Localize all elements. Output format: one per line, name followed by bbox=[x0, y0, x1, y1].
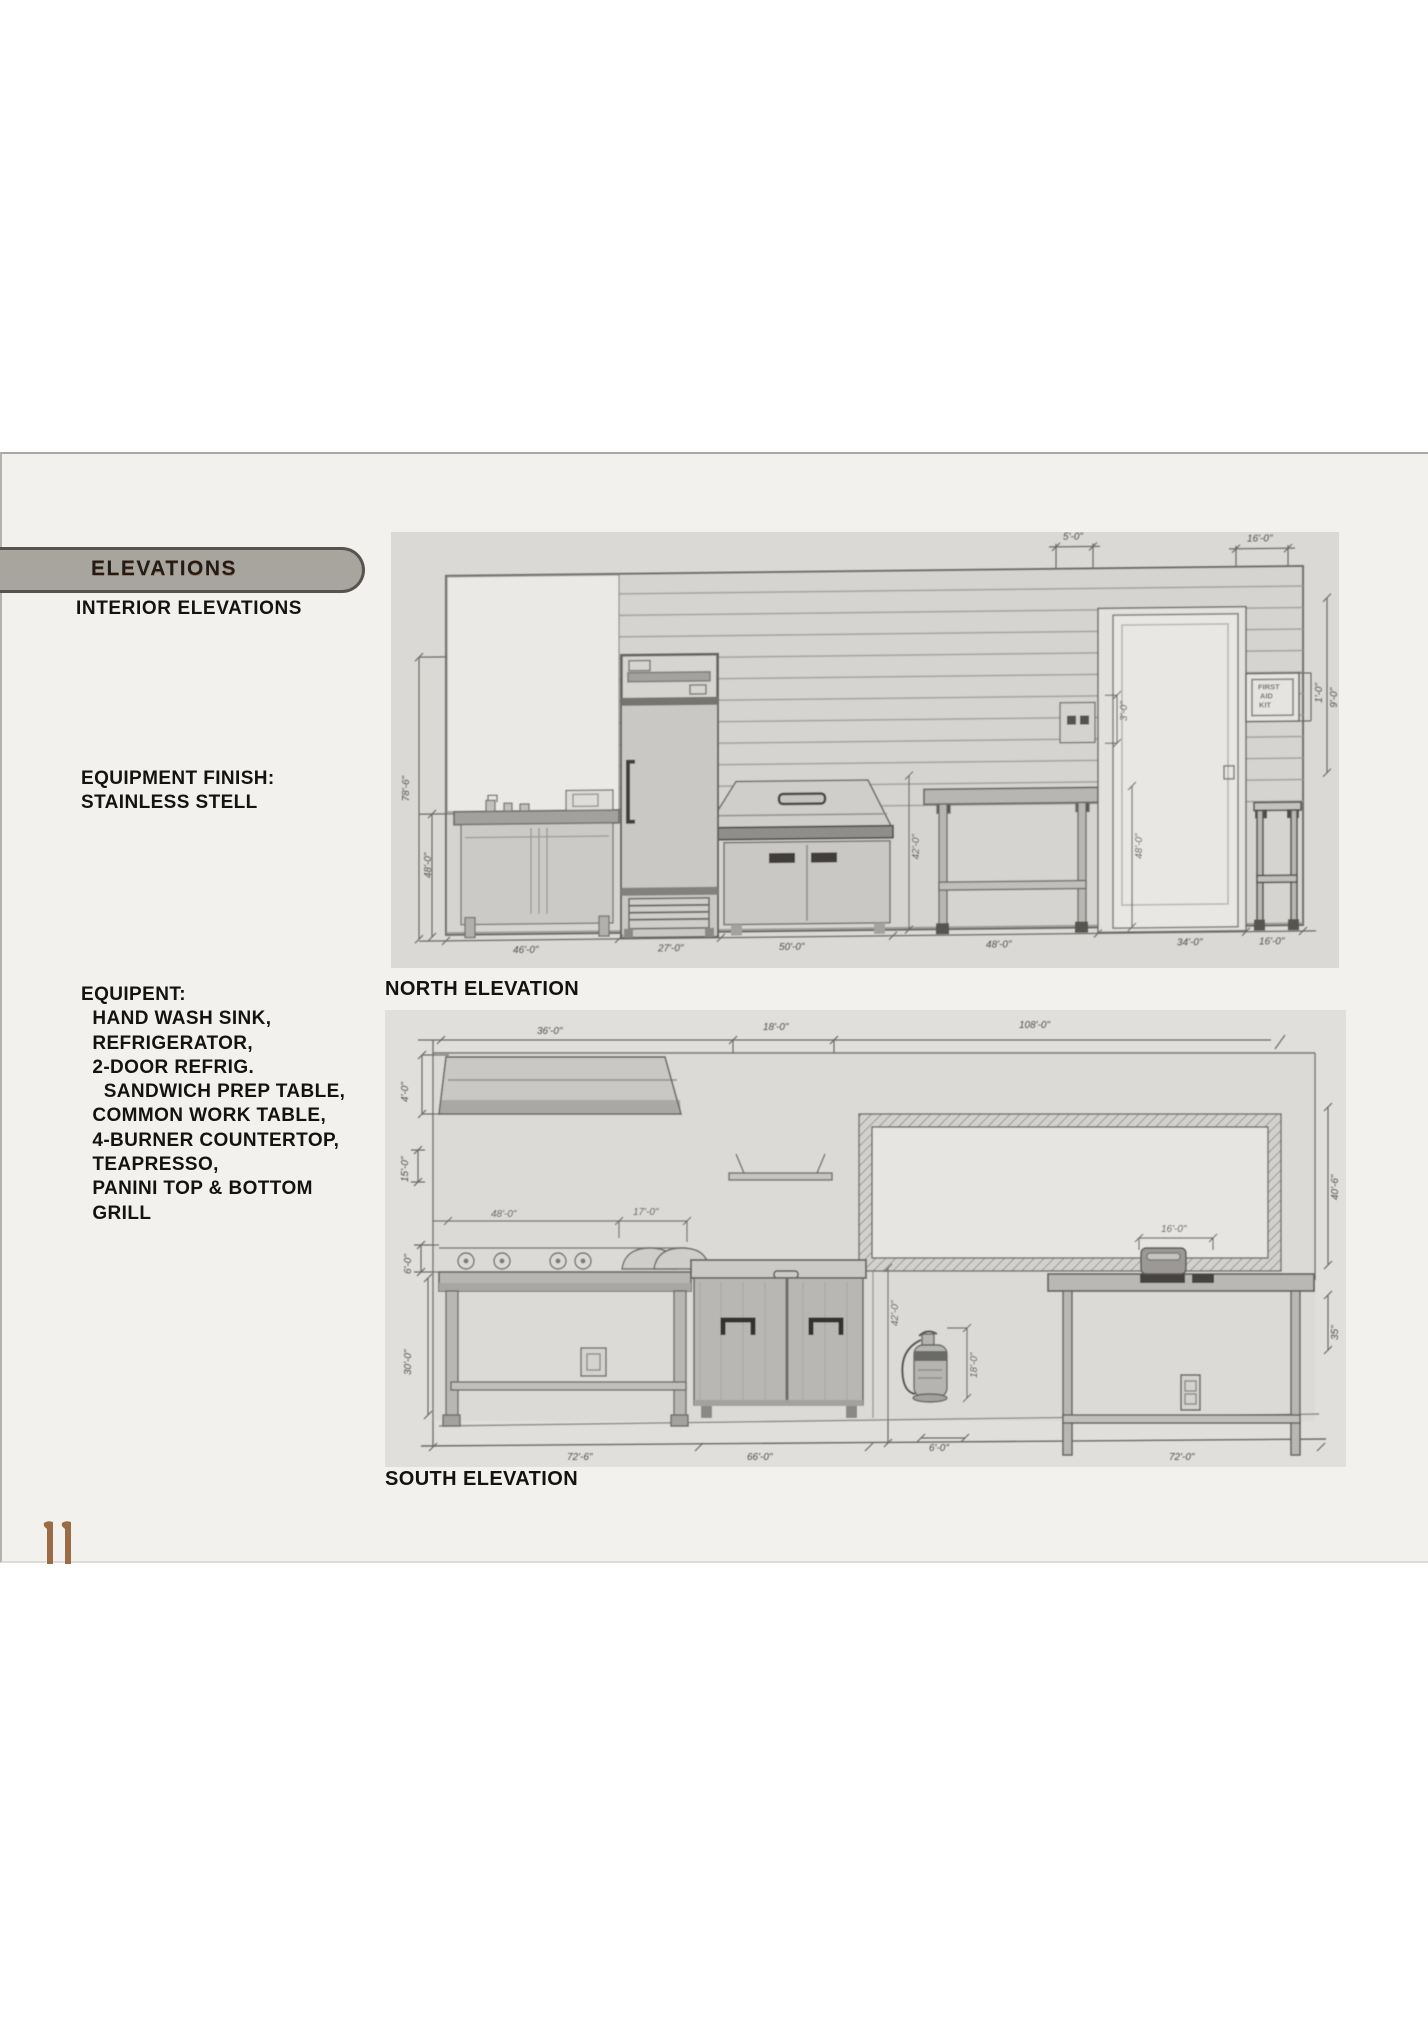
svg-text:72'-0": 72'-0" bbox=[1169, 1452, 1195, 1463]
svg-text:16'-0": 16'-0" bbox=[1161, 1224, 1187, 1235]
svg-text:15'-0": 15'-0" bbox=[400, 1156, 411, 1182]
svg-text:27'-0": 27'-0" bbox=[657, 943, 684, 954]
svg-text:FIRST: FIRST bbox=[1258, 682, 1280, 691]
svg-text:78'-6": 78'-6" bbox=[401, 775, 412, 801]
svg-text:5'-0": 5'-0" bbox=[1063, 532, 1083, 543]
svg-text:36'-0": 36'-0" bbox=[537, 1026, 563, 1037]
svg-text:46'-0": 46'-0" bbox=[513, 945, 539, 956]
svg-text:17'-0": 17'-0" bbox=[633, 1207, 659, 1218]
svg-text:34'-0": 34'-0" bbox=[1177, 937, 1203, 948]
svg-text:48'-0": 48'-0" bbox=[986, 939, 1012, 950]
svg-text:42'-0": 42'-0" bbox=[911, 833, 922, 859]
svg-text:30'-0": 30'-0" bbox=[403, 1349, 414, 1375]
svg-text:AID: AID bbox=[1260, 691, 1273, 700]
svg-text:18'-0": 18'-0" bbox=[969, 1352, 980, 1378]
svg-text:3'-0": 3'-0" bbox=[1119, 701, 1130, 721]
svg-text:42'-0": 42'-0" bbox=[890, 1300, 901, 1326]
svg-text:1'-0": 1'-0" bbox=[1314, 682, 1325, 702]
svg-text:9'-0": 9'-0" bbox=[1329, 687, 1339, 707]
svg-text:6'-0": 6'-0" bbox=[929, 1443, 949, 1454]
svg-text:16'-0": 16'-0" bbox=[1247, 533, 1273, 544]
svg-text:35": 35" bbox=[1330, 1325, 1341, 1340]
svg-text:18'-0": 18'-0" bbox=[763, 1022, 789, 1033]
svg-text:16'-0": 16'-0" bbox=[1259, 936, 1285, 947]
svg-text:40'-6": 40'-6" bbox=[1330, 1174, 1341, 1200]
svg-text:66'-0": 66'-0" bbox=[747, 1452, 773, 1463]
svg-text:50'-0": 50'-0" bbox=[779, 942, 805, 953]
svg-text:48'-0": 48'-0" bbox=[1134, 833, 1145, 859]
svg-text:108'-0": 108'-0" bbox=[1019, 1020, 1050, 1031]
svg-text:KIT: KIT bbox=[1259, 700, 1271, 709]
svg-text:72'-6": 72'-6" bbox=[567, 1452, 593, 1463]
svg-text:48'-0": 48'-0" bbox=[491, 1209, 517, 1220]
svg-text:6'-0": 6'-0" bbox=[403, 1254, 414, 1274]
svg-text:4'-0": 4'-0" bbox=[400, 1082, 411, 1102]
svg-text:48'-0": 48'-0" bbox=[423, 852, 434, 878]
